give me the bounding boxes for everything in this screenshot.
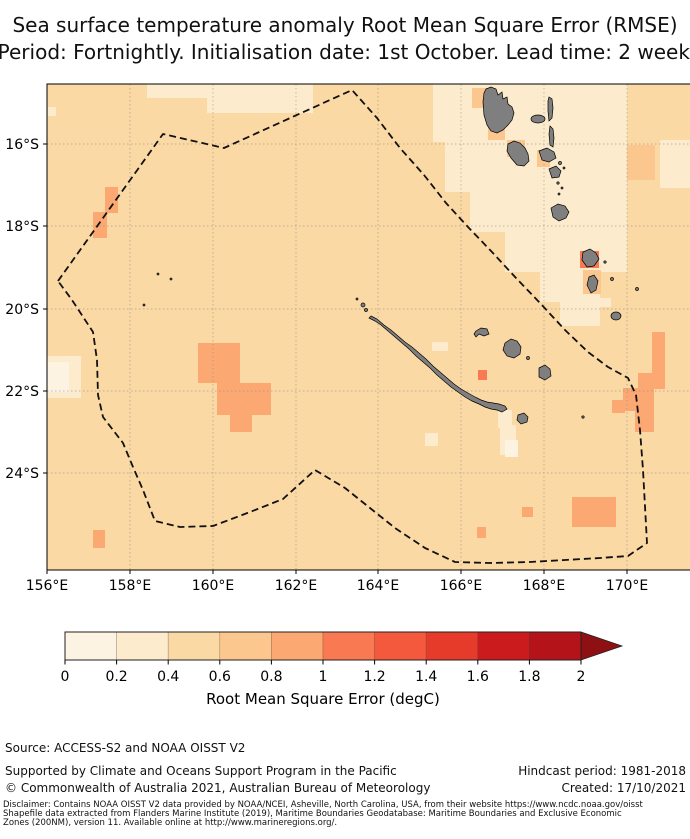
colorbar-tick-label: 1 [319,669,328,685]
rmse-patch-bin4 [652,332,665,373]
colorbar-segment [529,632,581,660]
rmse-patch-bin4 [217,383,271,415]
y-tick-label: 20°S [5,302,39,318]
islet-dot [170,278,172,280]
colorbar-tick-label: 2 [577,669,586,685]
colorbar-tick-label: 0.4 [157,669,179,685]
islet-dot [611,278,614,281]
rmse-patch-bin1 [425,433,438,446]
colorbar-extend-arrow [581,632,622,660]
x-tick-label: 160°E [192,578,235,594]
islet-dot [157,273,159,275]
rmse-patch-bin1 [560,302,600,326]
rmse-patch-bin0 [505,440,518,457]
island-maewo [548,97,553,121]
y-tick-label: 16°S [5,137,39,153]
islet-dot [143,304,145,306]
islet-dot [563,167,565,169]
rmse-patch-bin1 [660,140,690,188]
islet-dot [558,193,560,195]
x-tick-label: 158°E [109,578,152,594]
colorbar-segment [220,632,272,660]
hindcast-period: Hindcast period: 1981-2018 [518,764,686,778]
x-tick-label: 170°E [606,578,649,594]
colorbar: 00.20.40.60.811.21.41.61.82Root Mean Squ… [61,632,622,708]
rmse-patch-bin1 [433,84,627,142]
y-tick-label: 18°S [5,219,39,235]
colorbar-segment [271,632,323,660]
colorbar-segment [478,632,530,660]
rmse-patch-bin4 [198,343,240,383]
islet-dot [559,162,562,165]
x-tick-label: 168°E [523,578,566,594]
rmse-patch-bin1 [505,232,627,272]
copyright-line: © Commonwealth of Australia 2021, Austra… [5,781,430,795]
x-tick-label: 156°E [26,578,69,594]
rmse-patch-bin4 [623,388,654,411]
colorbar-segment [375,632,427,660]
colorbar-tick-label: 0 [61,669,70,685]
colorbar-axis-label: Root Mean Square Error (degC) [206,690,440,708]
rmse-patch-bin1 [147,84,209,98]
island-pentecost [549,126,554,147]
rmse-patch-bin1 [48,107,56,116]
colorbar-tick-label: 1.2 [363,669,385,685]
rmse-patch-bin4 [230,415,252,432]
islet-dot [561,187,563,189]
y-tick-label: 22°S [5,384,39,400]
source-line: Source: ACCESS-S2 and NOAA OISST V2 [5,741,245,755]
colorbar-tick-label: 1.4 [415,669,437,685]
rmse-patch-bin4 [477,527,486,538]
islet-dot [636,288,639,291]
rmse-patch-bin4 [612,400,625,413]
created-date: Created: 17/10/2021 [561,781,686,795]
colorbar-segment [426,632,478,660]
islet-dot [527,357,530,360]
rmse-patch-bin0 [47,362,69,392]
islet-dot [356,298,358,300]
x-tick-label: 162°E [275,578,318,594]
island-aoba [531,115,545,123]
rmse-patch-bin1 [445,142,627,192]
islet-dot [361,303,365,307]
rmse-patch-bin4 [572,497,616,527]
rmse-patch-bin1 [599,298,611,307]
x-tick-label: 164°E [357,578,400,594]
rmse-patch-bin4 [93,530,105,548]
colorbar-tick-label: 0.6 [209,669,231,685]
colorbar-tick-label: 0.2 [105,669,127,685]
rmse-patch-bin4 [638,373,665,389]
island-aneityum [611,312,621,320]
rmse-patch-bin4 [522,507,533,517]
map-plot-area [47,84,690,570]
rmse-map-figure: 156°E158°E160°E162°E164°E166°E168°E170°E… [0,0,690,839]
islet-dot [604,261,606,263]
colorbar-tick-label: 1.8 [518,669,540,685]
islet-dot [365,309,368,312]
colorbar-tick-label: 1.6 [467,669,489,685]
disclaimer-line-3: Zones (200NM), version 11. Available onl… [3,819,690,828]
colorbar-segment [168,632,220,660]
colorbar-tick-label: 0.8 [260,669,282,685]
colorbar-segment [117,632,169,660]
colorbar-segment [323,632,375,660]
rmse-patch-bin5 [478,370,487,380]
x-tick-label: 166°E [440,578,483,594]
rmse-patch-bin4 [635,411,654,432]
rmse-patch-bin1 [207,84,313,113]
islet-dot [582,416,584,418]
rmse-patch-bin3 [627,145,655,180]
rmse-patch-bin1 [432,342,448,351]
supported-line: Supported by Climate and Oceans Support … [5,764,397,778]
islet-dot [557,182,559,184]
colorbar-segment [65,632,117,660]
y-tick-label: 24°S [5,466,39,482]
